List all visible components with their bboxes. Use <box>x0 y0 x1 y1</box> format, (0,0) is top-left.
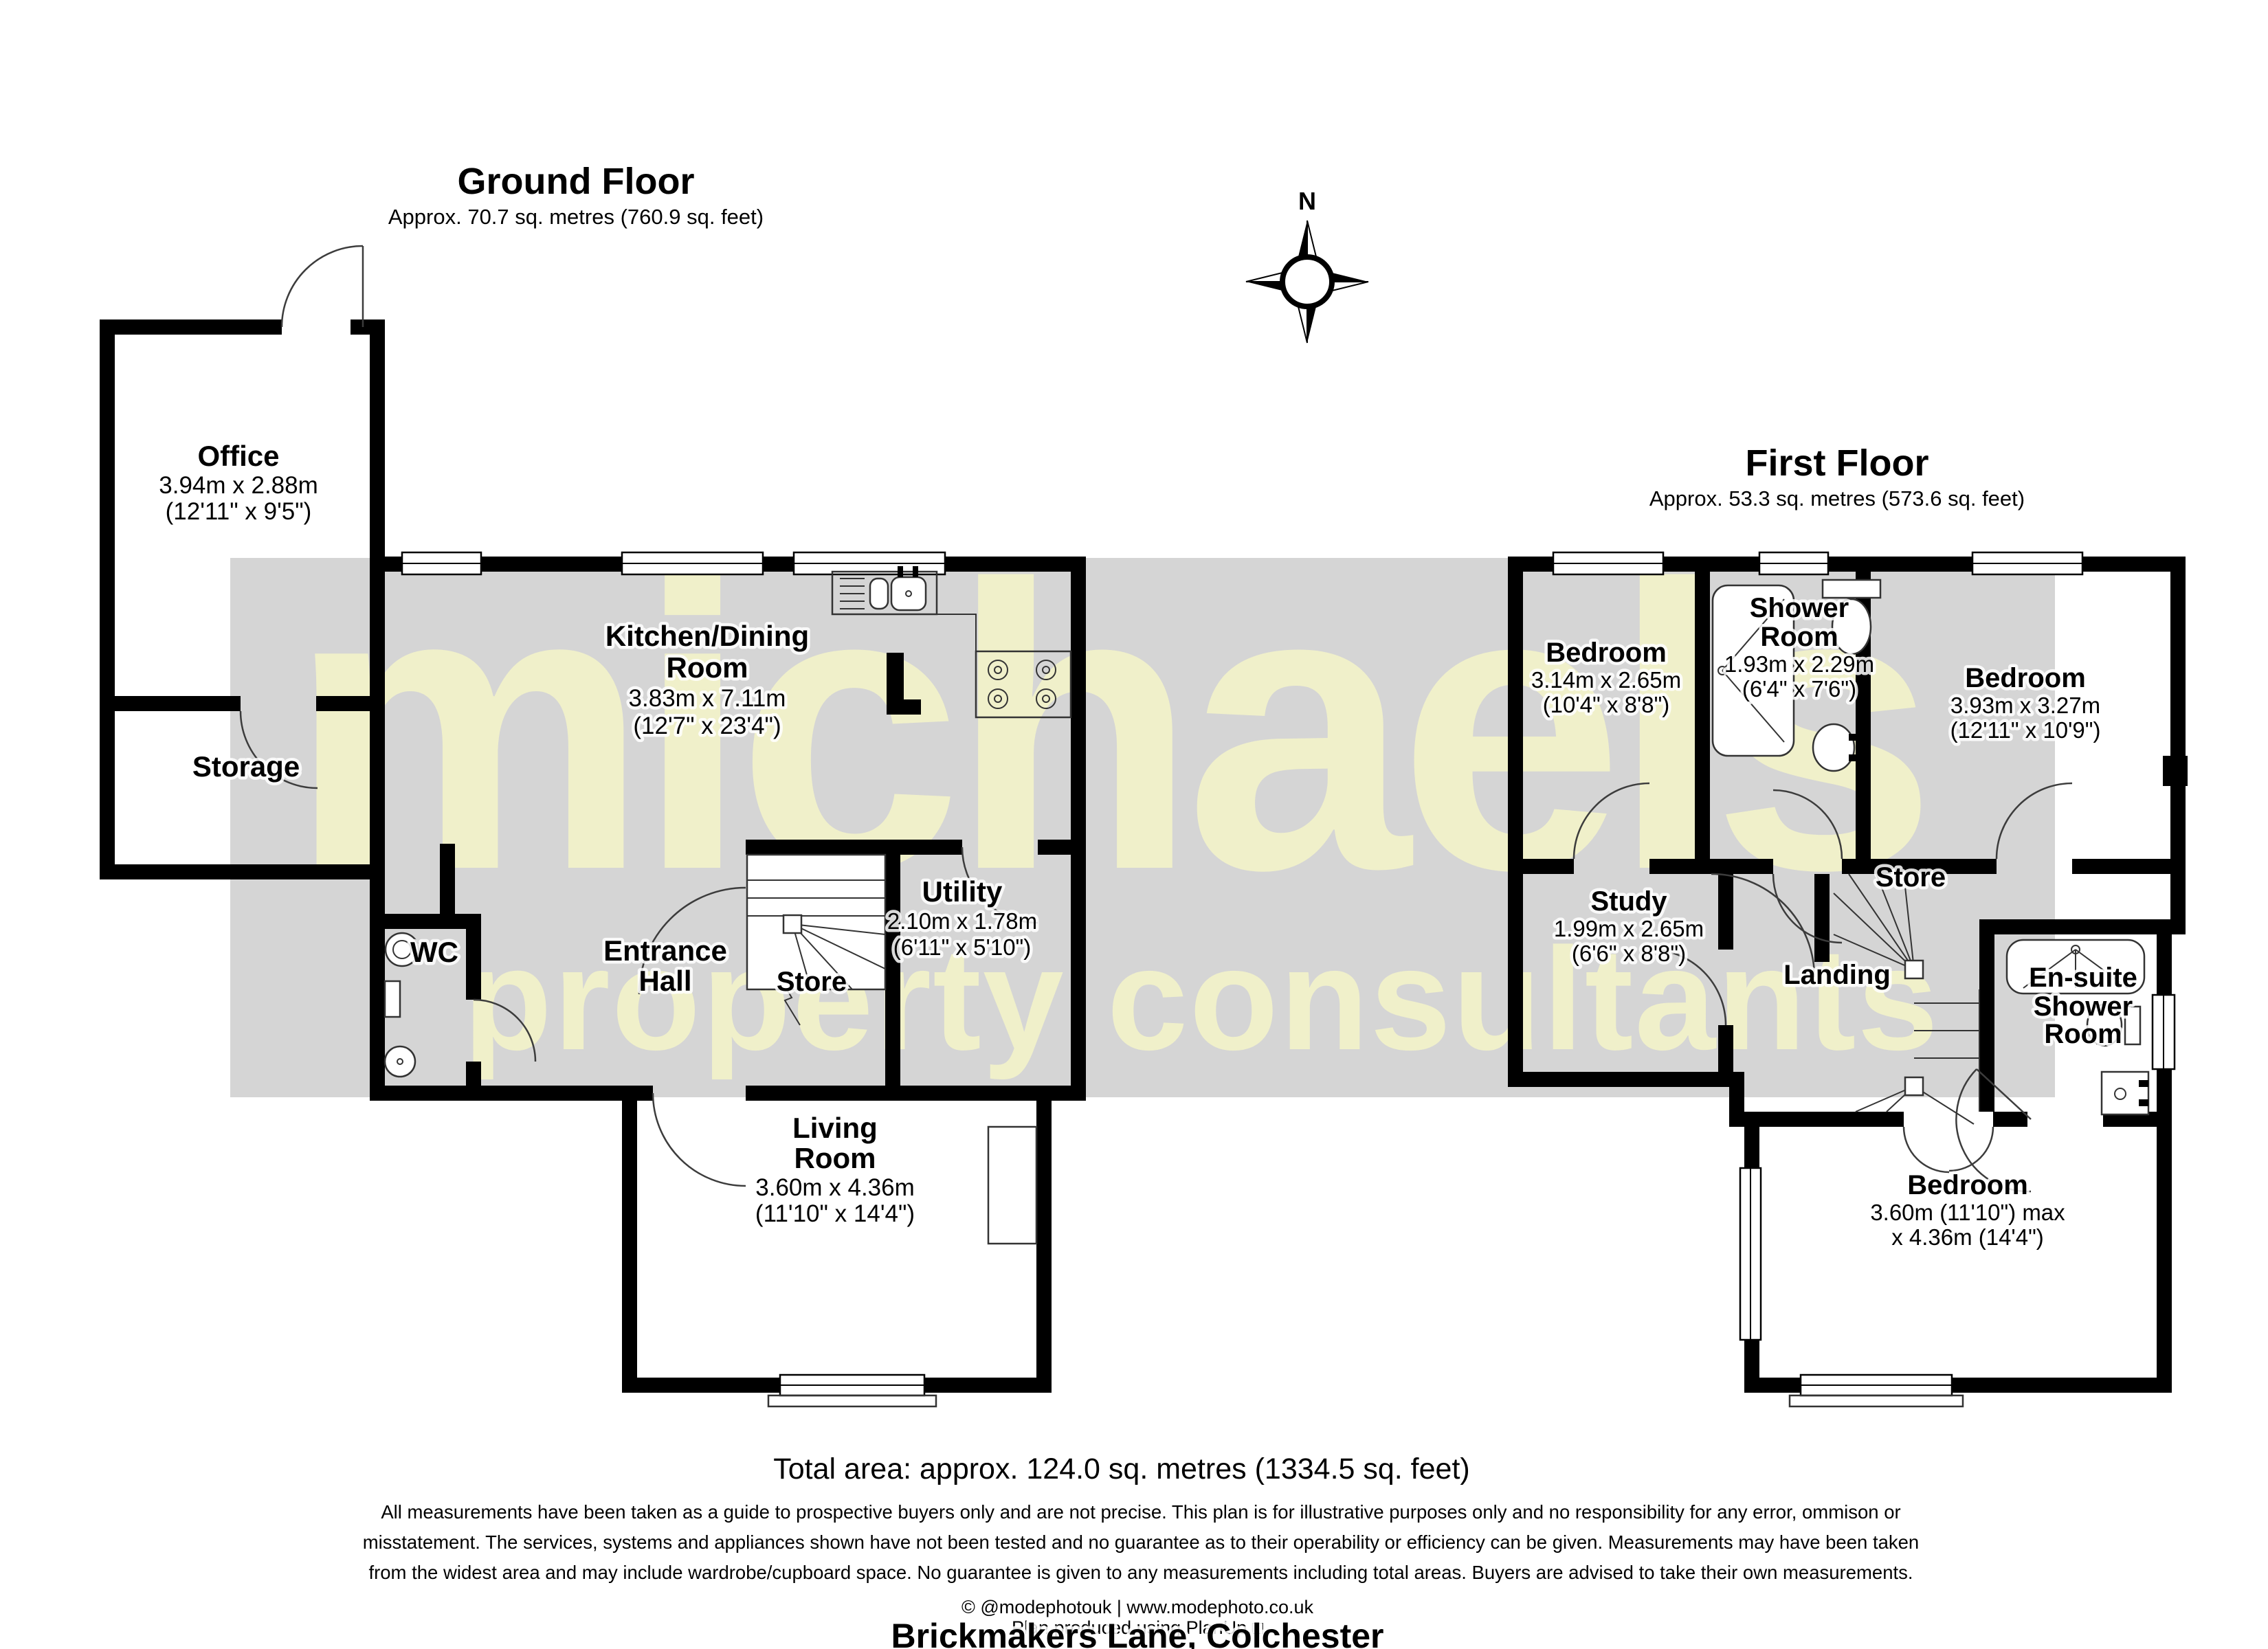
ground-floor-plan: Ground Floor Approx. 70.7 sq. metres (76… <box>100 161 1086 1406</box>
ff-store-label: Store <box>1876 862 1946 893</box>
floorplan-drawing: N Ground Floor Approx. 70.7 sq. metres (… <box>0 0 2268 1649</box>
bedroom2-imperial: (12'11" x 10'9") <box>1950 717 2101 743</box>
study-metric: 1.99m x 2.65m <box>1554 916 1704 941</box>
footer-texts: Total area: approx. 124.0 sq. metres (13… <box>363 1452 1919 1649</box>
floorplan-page: michaels property consultants N Ground F… <box>0 0 2268 1649</box>
gf-store-label: Store <box>777 967 847 997</box>
bedroom3-metric: 3.60m (11'10") max <box>1870 1200 2065 1225</box>
disclaimer-line-3: from the widest area and may include war… <box>368 1562 1913 1583</box>
living-metric: 3.60m x 4.36m <box>755 1174 915 1201</box>
photo-credit: © @modephotouk | www.modephoto.co.uk <box>961 1597 1314 1617</box>
kitchen-label-2: Room <box>667 651 748 684</box>
bedroom2-label: Bedroom <box>1965 663 2086 693</box>
utility-label: Utility <box>922 875 1003 908</box>
bedroom3-label: Bedroom <box>1907 1170 2028 1200</box>
landing-label: Landing <box>1783 960 1891 990</box>
disclaimer-line-1: All measurements have been taken as a gu… <box>381 1501 1900 1523</box>
compass-north-label: N <box>1298 187 1316 215</box>
office-imperial: (12'11" x 9'5") <box>166 498 312 525</box>
kitchen-imperial: (12'7" x 23'4") <box>633 713 781 739</box>
shower-room-metric: 1.93m x 2.29m <box>1724 651 1874 677</box>
shower-room-imperial: (6'4" x 7'6") <box>1742 676 1856 702</box>
hall-label-1: Entrance <box>603 934 727 967</box>
bedroom1-imperial: (10'4" x 8'8") <box>1543 692 1670 717</box>
property-address: Brickmakers Lane, Colchester <box>891 1617 1383 1649</box>
utility-metric: 2.10m x 1.78m <box>887 908 1037 934</box>
office-label: Office <box>197 440 279 472</box>
bedroom3-imperial: x 4.36m (14'4") <box>1891 1224 2044 1250</box>
hall-label-2: Hall <box>638 965 691 997</box>
ensuite-label-3: Room <box>2044 1019 2122 1049</box>
kitchen-label-1: Kitchen/Dining <box>605 620 809 652</box>
living-imperial: (11'10" x 14'4") <box>755 1200 915 1227</box>
chimney-breast <box>988 1127 1036 1244</box>
bedroom1-metric: 3.14m x 2.65m <box>1531 667 1681 693</box>
shower-room-label-1: Shower <box>1750 593 1849 623</box>
ground-floor-subtitle: Approx. 70.7 sq. metres (760.9 sq. feet) <box>388 205 764 229</box>
bedroom2-metric: 3.93m x 3.27m <box>1950 693 2100 718</box>
ground-floor-title: Ground Floor <box>458 161 695 202</box>
storage-label: Storage <box>192 750 300 783</box>
total-area-text: Total area: approx. 124.0 sq. metres (13… <box>773 1452 1469 1485</box>
first-floor-subtitle: Approx. 53.3 sq. metres (573.6 sq. feet) <box>1649 486 2025 511</box>
first-floor-plan: First Floor Approx. 53.3 sq. metres (573… <box>1508 442 2188 1406</box>
utility-imperial: (6'11" x 5'10") <box>893 934 1032 960</box>
disclaimer-line-2: misstatement. The services, systems and … <box>363 1532 1919 1553</box>
ensuite-label-1: En-suite <box>2029 963 2137 993</box>
ensuite-label-2: Shower <box>2034 991 2133 1022</box>
study-imperial: (6'6" x 8'8") <box>1572 941 1686 966</box>
compass-icon: N <box>1246 187 1368 343</box>
shower-room-label-2: Room <box>1760 622 1838 652</box>
kitchen-sink <box>832 566 976 651</box>
staircase-first-floor <box>1834 874 1979 1124</box>
hob-icon <box>976 651 1071 717</box>
living-label-2: Room <box>794 1142 876 1174</box>
first-floor-title: First Floor <box>1746 442 1929 484</box>
kitchen-metric: 3.83m x 7.11m <box>629 685 786 712</box>
office-metric: 3.94m x 2.88m <box>159 472 318 499</box>
study-label: Study <box>1590 886 1667 917</box>
wc-label: WC <box>410 936 458 968</box>
living-label-1: Living <box>792 1112 878 1144</box>
bedroom1-label: Bedroom <box>1546 638 1667 668</box>
